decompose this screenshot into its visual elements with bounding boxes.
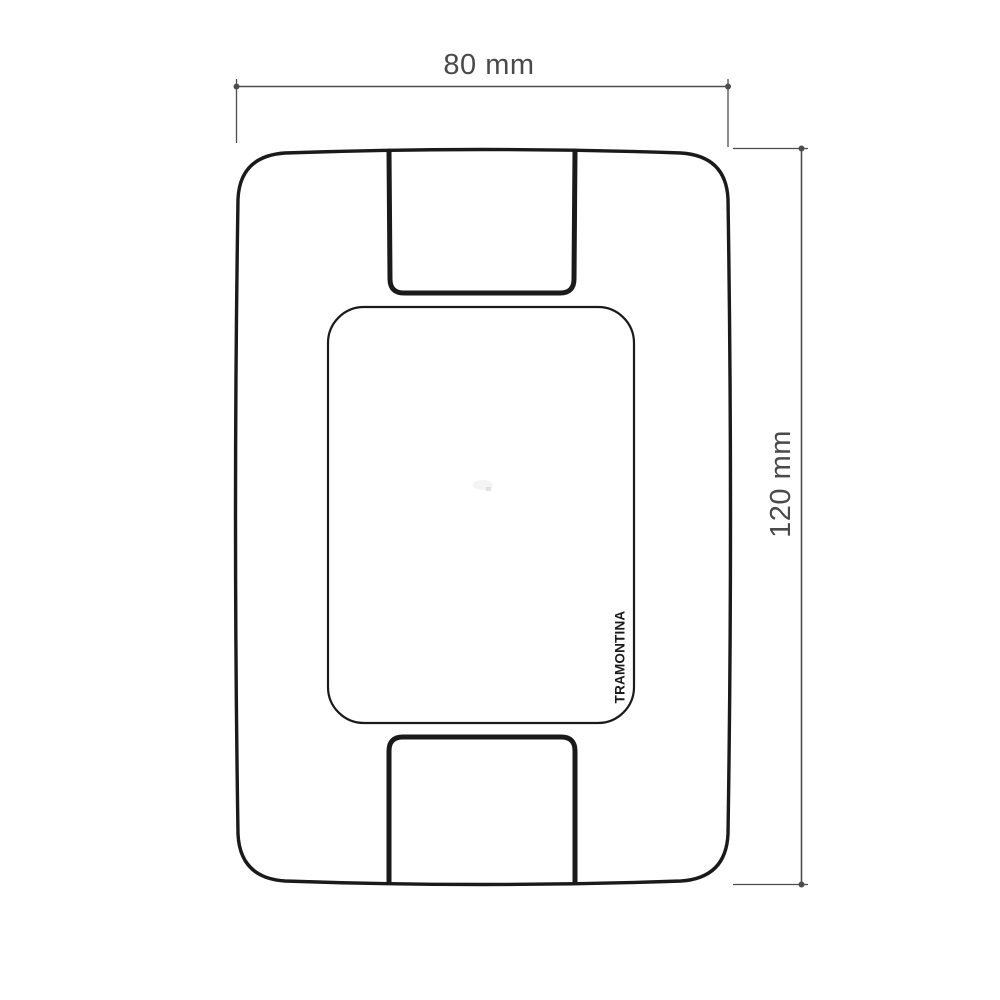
width-endpoint-left-dot-icon — [234, 84, 240, 90]
width-dimension: 80 mm — [234, 49, 732, 147]
technical-drawing-canvas: TRAMONTINA 80 mm 120 mm — [0, 0, 1000, 1000]
drawing-svg: TRAMONTINA 80 mm 120 mm — [0, 0, 1000, 1000]
height-endpoint-top-dot-icon — [799, 146, 805, 152]
height-dimension-label: 120 mm — [765, 430, 797, 538]
module-opening — [328, 307, 634, 723]
plate-outline — [236, 150, 731, 885]
width-endpoint-right-dot-icon — [725, 84, 731, 90]
brand-label: TRAMONTINA — [613, 611, 628, 704]
height-dimension: 120 mm — [733, 146, 808, 888]
width-dimension-label: 80 mm — [443, 49, 534, 81]
bottom-mounting-tab — [389, 737, 575, 882]
watermark-smudge — [473, 480, 493, 491]
top-mounting-tab — [389, 151, 575, 293]
height-endpoint-bottom-dot-icon — [799, 882, 805, 888]
